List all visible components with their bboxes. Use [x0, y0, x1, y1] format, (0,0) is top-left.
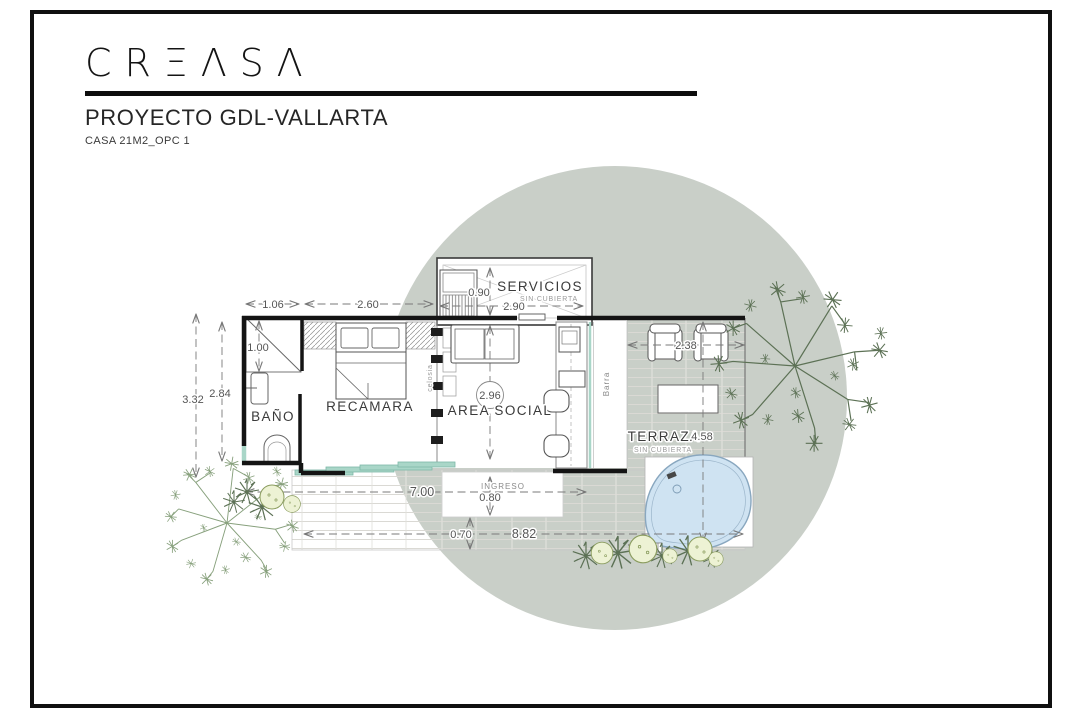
- bush-icon: [260, 485, 284, 509]
- dim-social-depth: 2.96: [479, 390, 500, 402]
- room-label-terraza: TERRAZA: [628, 429, 701, 444]
- sink-kitchen: [559, 371, 585, 387]
- dim-serv-depth: 0.90: [468, 287, 489, 299]
- bush-icon: [284, 496, 301, 513]
- sofa: [451, 325, 519, 363]
- stool: [544, 435, 569, 457]
- room-label-bano: BAÑO: [251, 409, 295, 424]
- bush-icon: [709, 552, 723, 566]
- closet-left: [304, 322, 336, 349]
- label-ingreso: INGRESO: [481, 482, 525, 491]
- bed: [336, 323, 406, 399]
- dim-shower: 1.00: [247, 342, 268, 354]
- room-label-servicios: SERVICIOS: [497, 279, 583, 294]
- label-barra: Barra: [602, 372, 611, 397]
- room-label-area-social: AREA SOCIAL: [448, 403, 553, 418]
- dim-total-depth: 3.32: [182, 394, 203, 406]
- room-label-recamara: RECAMARA: [326, 399, 414, 414]
- plant-icon: [223, 490, 245, 513]
- bush-icon: [663, 549, 677, 563]
- dim-interior-depth: 2.84: [209, 388, 230, 400]
- pillow: [372, 328, 399, 348]
- label-celosia: celosia: [427, 364, 434, 391]
- dim-chairs: 2.38: [675, 340, 696, 352]
- dim-bath-width: 1.06: [262, 299, 283, 311]
- floor-plan-drawing: BAÑO RECAMARA AREA SOCIAL SERVICIOS SIN …: [0, 0, 1081, 720]
- armchair: [694, 324, 728, 361]
- terraza-table: [658, 385, 718, 413]
- bush-icon: [629, 535, 657, 563]
- dim-house-width: 7.00: [410, 485, 434, 499]
- note-sin-cubierta: SIN CUBIERTA: [520, 296, 578, 303]
- ingreso-walkway: [442, 472, 563, 517]
- dim-deck: 0.70: [450, 529, 471, 541]
- shelf: [443, 376, 456, 396]
- dim-bed-width: 2.60: [357, 299, 378, 311]
- pillow: [341, 328, 368, 348]
- servicios-door: [519, 314, 545, 320]
- dim-serv-width: 2.90: [503, 301, 524, 313]
- dim-total-width: 8.82: [512, 527, 536, 541]
- closet-right: [406, 322, 435, 349]
- dim-terraza-depth: 4.58: [691, 431, 712, 443]
- dim-entry: 0.80: [479, 492, 500, 504]
- bush-icon: [688, 537, 712, 561]
- tree-icon: [162, 455, 301, 588]
- note-sin-cubierta: SIN CUBIERTA: [634, 447, 692, 454]
- bush-icon: [591, 542, 613, 564]
